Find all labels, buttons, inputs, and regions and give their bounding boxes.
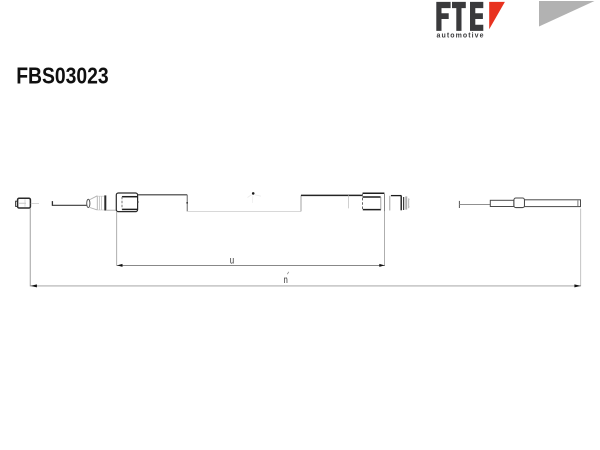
svg-text:FBS03023: FBS03023: [16, 62, 109, 88]
svg-text:n: n: [284, 275, 288, 286]
svg-text:u: u: [230, 255, 234, 267]
svg-text:automotive: automotive: [437, 33, 484, 40]
